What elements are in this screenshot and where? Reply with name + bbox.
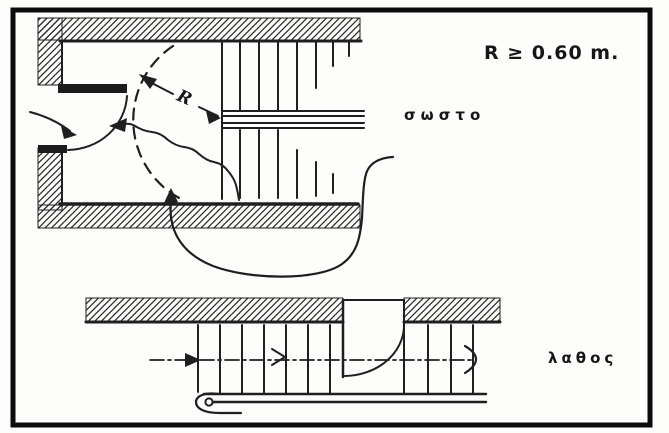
- stair-door-clearance-figure: R ≥ 0.60 m. R σωστο λαθος: [0, 0, 669, 433]
- stair-handrail-bottom-plan: [196, 393, 486, 413]
- door-swing-arc-wrong: [345, 327, 404, 376]
- stair-treads-top-plan: [222, 41, 349, 199]
- stair-handrail-top-plan: [222, 111, 364, 128]
- wrong-plan-drawing: [86, 298, 500, 413]
- correct-plan-drawing: [30, 18, 393, 277]
- wall-stub-below-door: [38, 145, 67, 153]
- walking-line-mid-arrowhead: [272, 349, 285, 365]
- figure-drawing: [0, 0, 669, 433]
- label-correct: σωστο: [404, 108, 485, 123]
- radius-requirement-note: R ≥ 0.60 m.: [484, 44, 619, 63]
- handrail-hook-end: [196, 393, 241, 413]
- stair-treads-bottom-plan: [198, 325, 473, 393]
- handrail-hook-eye: [205, 398, 212, 405]
- entry-arrowhead: [61, 126, 77, 139]
- circulation-wavy-arrow: [109, 118, 239, 200]
- walls-hatched-bottom-plan: [86, 298, 500, 322]
- entry-arrow: [30, 112, 77, 139]
- door-notch-outline: [343, 300, 404, 322]
- clearance-radius-dashed-arc: [133, 46, 181, 199]
- label-wrong: λαθος: [548, 351, 617, 366]
- wall-stub-above-door: [58, 84, 127, 93]
